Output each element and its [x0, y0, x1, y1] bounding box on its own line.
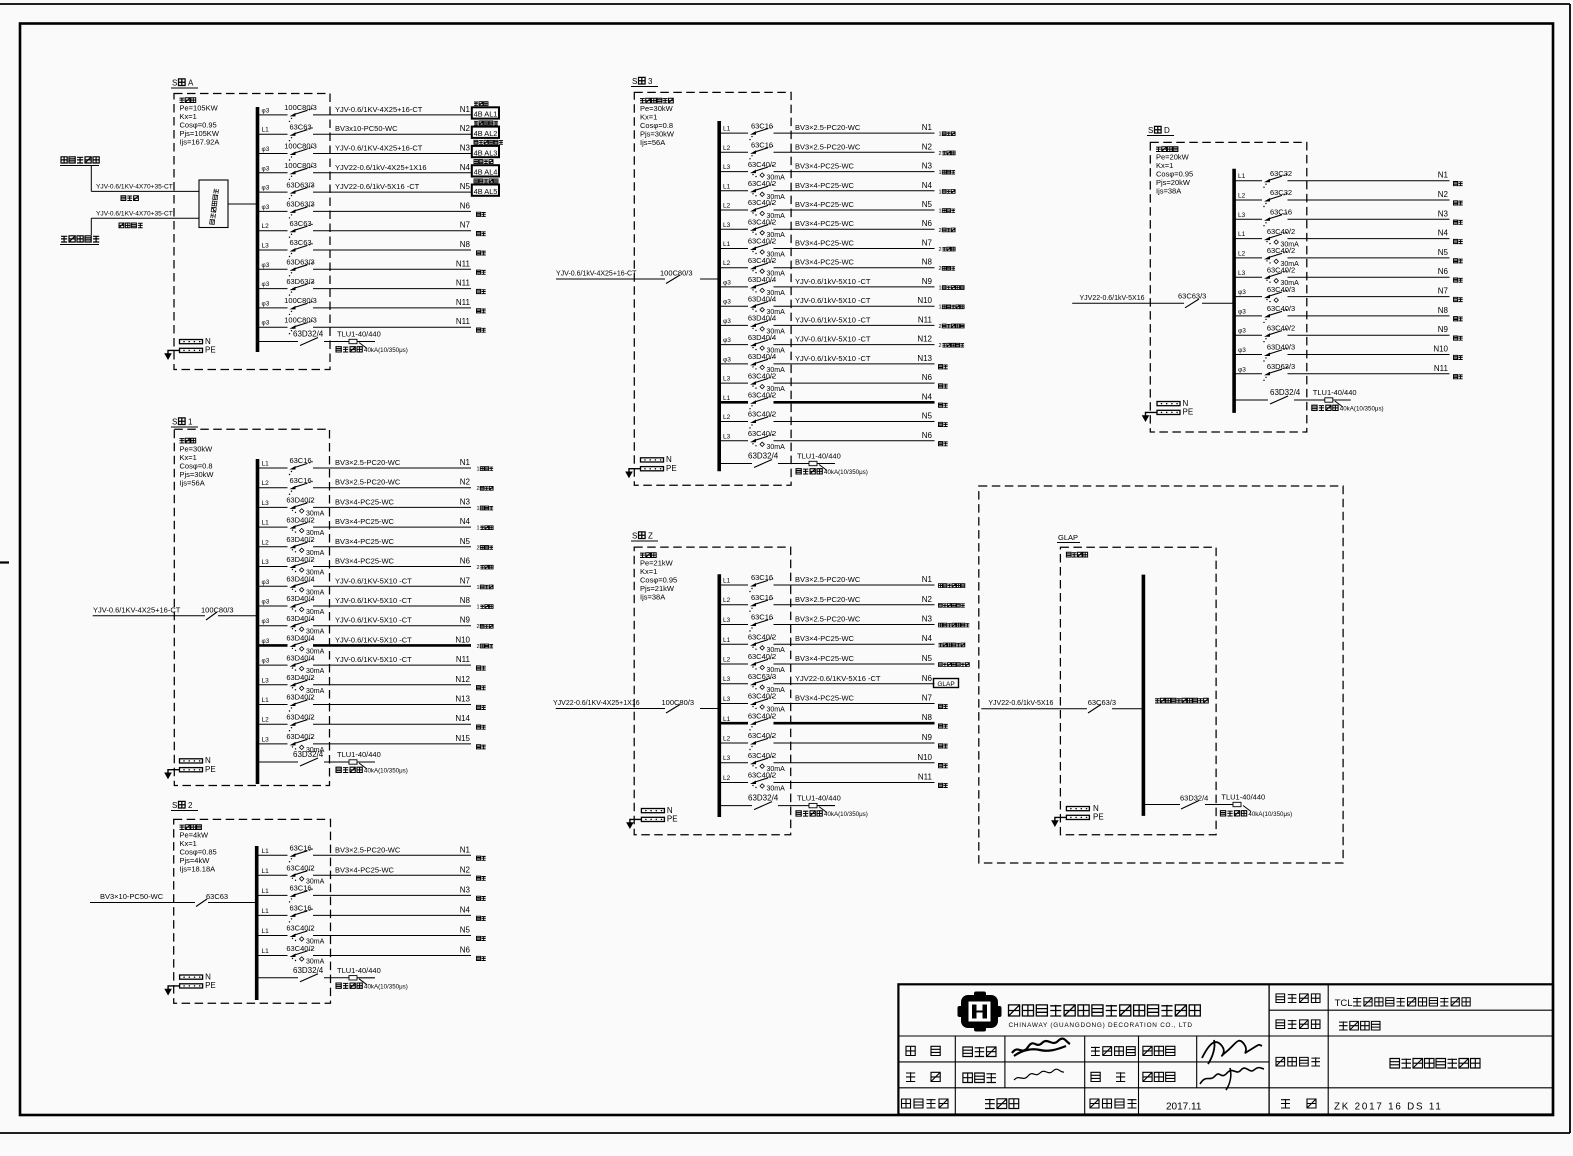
- svg-text:63C40/2: 63C40/2: [748, 731, 776, 740]
- svg-text:L3: L3: [1238, 212, 1246, 219]
- svg-text:PE: PE: [1093, 813, 1104, 822]
- svg-text:N3: N3: [922, 162, 933, 171]
- svg-text:N11: N11: [918, 773, 933, 782]
- svg-text:YJV-0.6/1kV-5X10 -CT: YJV-0.6/1kV-5X10 -CT: [795, 354, 871, 363]
- svg-text:63D40/4: 63D40/4: [748, 352, 776, 361]
- svg-text:Z: Z: [648, 532, 653, 541]
- svg-text:Ijs=167.92A: Ijs=167.92A: [180, 138, 220, 147]
- svg-text:φ3: φ3: [262, 638, 270, 645]
- svg-text:L3: L3: [723, 696, 731, 703]
- svg-text:N12: N12: [455, 675, 470, 684]
- svg-text:N11: N11: [918, 315, 933, 324]
- svg-text:L1: L1: [723, 241, 731, 248]
- svg-text:BV3×4-PC25-WC: BV3×4-PC25-WC: [335, 517, 395, 526]
- svg-text:S: S: [632, 77, 637, 86]
- svg-text:YJV-0.6/1KV-4X70+35-CT: YJV-0.6/1KV-4X70+35-CT: [96, 210, 173, 217]
- svg-text:63C16: 63C16: [751, 593, 773, 602]
- svg-text:63C40/2: 63C40/2: [748, 751, 776, 760]
- svg-text:L2: L2: [723, 775, 731, 782]
- svg-text:φ3: φ3: [1238, 366, 1246, 373]
- svg-text:N6: N6: [922, 674, 933, 683]
- svg-text:100C80/3: 100C80/3: [284, 296, 317, 305]
- svg-text:PE: PE: [667, 815, 678, 824]
- svg-text:63C40/2: 63C40/2: [286, 924, 314, 933]
- svg-text:63C40/2: 63C40/2: [748, 771, 776, 780]
- svg-text:4B AL1: 4B AL1: [474, 110, 498, 119]
- svg-text:2: 2: [939, 343, 942, 349]
- svg-text:N2: N2: [460, 865, 471, 874]
- svg-text:BV3×10-PC50-WC: BV3×10-PC50-WC: [100, 892, 164, 901]
- svg-text:YJV-0.6/1kV-5X10 -CT: YJV-0.6/1kV-5X10 -CT: [795, 315, 871, 324]
- svg-text:N10: N10: [1433, 345, 1448, 354]
- svg-text:TLU1-40/440: TLU1-40/440: [797, 452, 841, 461]
- svg-text:N3: N3: [460, 144, 471, 153]
- svg-text:40kA(10/350μs): 40kA(10/350μs): [824, 469, 868, 476]
- svg-text:N4: N4: [460, 517, 471, 526]
- svg-text:S: S: [172, 801, 177, 810]
- svg-text:N3: N3: [460, 497, 471, 506]
- svg-text:L3: L3: [262, 677, 270, 684]
- svg-text:1: 1: [477, 467, 480, 473]
- svg-text:2: 2: [939, 228, 942, 234]
- svg-text:63C16: 63C16: [289, 456, 311, 465]
- svg-text:φ3: φ3: [723, 337, 731, 344]
- svg-text:N1: N1: [922, 123, 933, 132]
- svg-text:L3: L3: [723, 433, 731, 440]
- svg-text:BV3×2.5-PC20-WC: BV3×2.5-PC20-WC: [335, 478, 401, 487]
- svg-text:63C40/2: 63C40/2: [748, 391, 776, 400]
- svg-text:63D40/2: 63D40/2: [286, 535, 314, 544]
- svg-text:N1: N1: [922, 575, 933, 584]
- svg-text:2: 2: [939, 324, 942, 330]
- svg-text:63C40/2: 63C40/2: [748, 160, 776, 169]
- svg-text:100C80/3: 100C80/3: [284, 142, 317, 151]
- svg-text:63D40/2: 63D40/2: [286, 693, 314, 702]
- svg-text:L3: L3: [262, 559, 270, 566]
- svg-text:YJV-0.6/1kV-4X25+16-CT: YJV-0.6/1kV-4X25+16-CT: [556, 271, 637, 278]
- svg-text:L3: L3: [1238, 270, 1246, 277]
- svg-text:N7: N7: [460, 221, 471, 230]
- svg-text:63C63/3: 63C63/3: [1088, 698, 1116, 707]
- svg-text:S: S: [632, 532, 637, 541]
- svg-text:L3: L3: [723, 676, 731, 683]
- svg-text:40kA(10/350μs): 40kA(10/350μs): [364, 983, 408, 990]
- svg-text:BV3×4-PC25-WC: BV3×4-PC25-WC: [335, 497, 395, 506]
- svg-text:N: N: [667, 806, 673, 815]
- svg-text:L3: L3: [262, 500, 270, 507]
- svg-text:63D32/4: 63D32/4: [748, 794, 779, 803]
- svg-text:φ3: φ3: [262, 204, 270, 211]
- svg-text:N: N: [205, 337, 211, 346]
- svg-text:BV3×4-PC25-WC: BV3×4-PC25-WC: [795, 162, 855, 171]
- svg-text:N4: N4: [1438, 229, 1449, 238]
- svg-text:2: 2: [939, 151, 942, 157]
- svg-text:63D40/4: 63D40/4: [748, 294, 776, 303]
- svg-text:2: 2: [188, 801, 193, 810]
- svg-text:63C16: 63C16: [751, 121, 773, 130]
- svg-text:N: N: [666, 455, 672, 464]
- svg-text:PE: PE: [666, 464, 677, 473]
- svg-text:YJV22-0.6/1KV-5X16 -CT: YJV22-0.6/1KV-5X16 -CT: [795, 674, 881, 683]
- svg-text:63D32/4: 63D32/4: [748, 452, 779, 461]
- svg-text:N14: N14: [455, 714, 470, 723]
- svg-text:N1: N1: [460, 845, 471, 854]
- svg-text:4B AL2: 4B AL2: [474, 129, 498, 138]
- svg-text:N9: N9: [460, 616, 471, 625]
- svg-text:BV3x10-PC50-WC: BV3x10-PC50-WC: [335, 124, 398, 133]
- svg-text:63D40/2: 63D40/2: [286, 515, 314, 524]
- svg-text:YJV22-0.6/1kV-4X25+1X16: YJV22-0.6/1kV-4X25+1X16: [335, 163, 427, 172]
- svg-text:φ3: φ3: [262, 579, 270, 586]
- svg-text:TCL: TCL: [1335, 998, 1353, 1009]
- svg-text:BV3×2.5-PC20-WC: BV3×2.5-PC20-WC: [795, 142, 861, 151]
- svg-text:63D32/4: 63D32/4: [293, 750, 324, 759]
- svg-text:φ3: φ3: [1238, 289, 1246, 296]
- svg-text:N1: N1: [460, 105, 471, 114]
- svg-text:L1: L1: [723, 716, 731, 723]
- svg-text:YJV-0.6/1KV-4X25+16-CT: YJV-0.6/1KV-4X25+16-CT: [93, 606, 181, 615]
- svg-text:L2: L2: [723, 597, 731, 604]
- svg-text:63C16: 63C16: [289, 476, 311, 485]
- svg-text:L2: L2: [262, 480, 270, 487]
- svg-text:YJV-0.6/1kV-5X10 -CT: YJV-0.6/1kV-5X10 -CT: [795, 335, 871, 344]
- svg-text:4B AL4: 4B AL4: [474, 168, 498, 177]
- svg-text:N8: N8: [922, 258, 933, 267]
- svg-text:N4: N4: [460, 163, 471, 172]
- svg-text:N8: N8: [1438, 306, 1449, 315]
- svg-text:63C40/2: 63C40/2: [286, 864, 314, 873]
- svg-text:BV3×4-PC25-WC: BV3×4-PC25-WC: [335, 537, 395, 546]
- svg-text:PE: PE: [1183, 408, 1194, 417]
- svg-text:100C80/3: 100C80/3: [284, 315, 317, 324]
- svg-text:63C16: 63C16: [751, 141, 773, 150]
- svg-text:63D40/2: 63D40/2: [286, 712, 314, 721]
- svg-text:1: 1: [477, 506, 480, 512]
- svg-text:N10: N10: [455, 635, 470, 644]
- svg-text:2: 2: [477, 565, 480, 571]
- svg-text:63C16: 63C16: [289, 884, 311, 893]
- svg-text:YJV22-0.6/1kV-5X16: YJV22-0.6/1kV-5X16: [988, 700, 1053, 707]
- svg-text:N4: N4: [922, 392, 933, 401]
- svg-text:BV3×4-PC25-WC: BV3×4-PC25-WC: [795, 219, 855, 228]
- svg-text:L1: L1: [1238, 231, 1246, 238]
- svg-text:BV3×2.5-PC20-WC: BV3×2.5-PC20-WC: [795, 615, 861, 624]
- svg-text:63D40/4: 63D40/4: [286, 614, 314, 623]
- svg-text:YJV-0.6/1kV-5X10 -CT: YJV-0.6/1kV-5X10 -CT: [795, 277, 871, 286]
- svg-text:BV3×2.5-PC20-WC: BV3×2.5-PC20-WC: [795, 123, 861, 132]
- svg-text:L3: L3: [723, 617, 731, 624]
- svg-text:L3: L3: [723, 222, 731, 229]
- svg-text:L2: L2: [1238, 193, 1246, 200]
- svg-text:1: 1: [939, 305, 942, 311]
- svg-text:Ijs=56A: Ijs=56A: [640, 138, 665, 147]
- svg-text:4B AL3: 4B AL3: [474, 148, 498, 157]
- svg-text:YJV-0.6/1KV-5X10 -CT: YJV-0.6/1KV-5X10 -CT: [335, 635, 412, 644]
- svg-text:YJV-0.6/1KV-4X70+35-CT: YJV-0.6/1KV-4X70+35-CT: [96, 184, 173, 191]
- svg-text:63C63/3: 63C63/3: [748, 672, 776, 681]
- svg-text:L2: L2: [723, 145, 731, 152]
- svg-text:40kA(10/350μs): 40kA(10/350μs): [1340, 406, 1384, 413]
- svg-text:N15: N15: [455, 734, 470, 743]
- svg-text:N2: N2: [460, 124, 471, 133]
- svg-text:63D32/4: 63D32/4: [293, 966, 324, 975]
- svg-text:N11: N11: [456, 259, 471, 268]
- svg-text:N4: N4: [922, 181, 933, 190]
- svg-text:N2: N2: [1438, 190, 1449, 199]
- svg-text:N: N: [1093, 804, 1099, 813]
- svg-text:N5: N5: [1438, 248, 1449, 257]
- svg-text:φ3: φ3: [723, 299, 731, 306]
- svg-text:φ3: φ3: [1238, 308, 1246, 315]
- svg-text:40kA(10/350μs): 40kA(10/350μs): [1248, 811, 1292, 818]
- svg-text:φ3: φ3: [262, 146, 270, 153]
- svg-text:N8: N8: [922, 713, 933, 722]
- svg-text:2: 2: [477, 644, 480, 650]
- svg-text:L2: L2: [723, 736, 731, 743]
- svg-text:N7: N7: [1438, 287, 1449, 296]
- svg-text:63D32/4: 63D32/4: [293, 330, 324, 339]
- svg-text:1: 1: [477, 585, 480, 591]
- svg-text:L1: L1: [262, 908, 270, 915]
- svg-text:63D40/2: 63D40/2: [286, 673, 314, 682]
- svg-text:φ3: φ3: [262, 107, 270, 114]
- svg-text:YJV-0.6/1kV-5X10 -CT: YJV-0.6/1kV-5X10 -CT: [795, 296, 871, 305]
- svg-text:63C40/2: 63C40/2: [748, 217, 776, 226]
- svg-text:L1: L1: [1238, 173, 1246, 180]
- svg-text:L1: L1: [723, 395, 731, 402]
- svg-text:63C40/2: 63C40/2: [748, 237, 776, 246]
- svg-text:1: 1: [477, 605, 480, 611]
- svg-text:63D40/4: 63D40/4: [286, 594, 314, 603]
- svg-text:N13: N13: [917, 354, 932, 363]
- svg-text:4B AL5: 4B AL5: [474, 187, 498, 196]
- svg-text:63D40/4: 63D40/4: [748, 314, 776, 323]
- svg-text:N: N: [205, 756, 211, 765]
- svg-text:BV3×4-PC25-WC: BV3×4-PC25-WC: [795, 200, 855, 209]
- svg-text:2: 2: [477, 545, 480, 551]
- svg-text:N11: N11: [456, 298, 471, 307]
- svg-text:A: A: [188, 79, 194, 88]
- svg-text:N1: N1: [1438, 171, 1449, 180]
- svg-text:N11: N11: [456, 655, 471, 664]
- svg-text:30mA: 30mA: [306, 959, 325, 966]
- svg-text:N3: N3: [1438, 209, 1449, 218]
- svg-text:L1: L1: [262, 848, 270, 855]
- svg-text:PE: PE: [205, 346, 216, 355]
- svg-text:φ3: φ3: [262, 618, 270, 625]
- svg-text:BV3×2.5-PC20-WC: BV3×2.5-PC20-WC: [795, 595, 861, 604]
- svg-text:φ3: φ3: [262, 262, 270, 269]
- svg-text:N6: N6: [460, 557, 471, 566]
- svg-text:1: 1: [477, 526, 480, 532]
- svg-text:Ijs=38A: Ijs=38A: [1156, 187, 1181, 196]
- svg-text:BV3×4-PC25-WC: BV3×4-PC25-WC: [335, 865, 395, 874]
- svg-text:1: 1: [939, 170, 942, 176]
- svg-text:BV3×4-PC25-WC: BV3×4-PC25-WC: [795, 634, 855, 643]
- svg-text:S: S: [1148, 126, 1153, 135]
- svg-text:63D40/2: 63D40/2: [286, 496, 314, 505]
- svg-text:YJV22-0.6/1KV-4X25+1X16: YJV22-0.6/1KV-4X25+1X16: [553, 700, 640, 707]
- svg-text:N6: N6: [922, 431, 933, 440]
- svg-text:BV3×4-PC25-WC: BV3×4-PC25-WC: [795, 654, 855, 663]
- svg-text:L3: L3: [723, 164, 731, 171]
- svg-text:63D40/2: 63D40/2: [286, 732, 314, 741]
- svg-text:L1: L1: [723, 126, 731, 133]
- svg-text:L2: L2: [723, 203, 731, 210]
- svg-text:BV3×2.5-PC20-WC: BV3×2.5-PC20-WC: [335, 845, 401, 854]
- svg-text:N4: N4: [460, 905, 471, 914]
- svg-text:L3: L3: [262, 243, 270, 250]
- svg-text:63C16: 63C16: [751, 613, 773, 622]
- svg-text:N9: N9: [1438, 325, 1449, 334]
- svg-text:L1: L1: [262, 461, 270, 468]
- svg-text:φ3: φ3: [723, 356, 731, 363]
- svg-text:φ3: φ3: [262, 165, 270, 172]
- svg-text:S: S: [172, 418, 177, 427]
- svg-text:YJV22-0.6/1kV-5X16: YJV22-0.6/1kV-5X16: [1080, 295, 1145, 302]
- svg-text:2: 2: [939, 266, 942, 272]
- svg-text:L2: L2: [262, 539, 270, 546]
- svg-text:YJV-0.6/1KV-5X10 -CT: YJV-0.6/1KV-5X10 -CT: [335, 655, 412, 664]
- svg-text:L1: L1: [723, 183, 731, 190]
- svg-text:N10: N10: [917, 753, 932, 762]
- svg-text:N7: N7: [460, 576, 471, 585]
- svg-text:63D40/4: 63D40/4: [286, 634, 314, 643]
- svg-text:S: S: [172, 79, 177, 88]
- svg-text:BV3×2.5-PC20-WC: BV3×2.5-PC20-WC: [795, 575, 861, 584]
- svg-text:YJV-0.6/1KV-5X10 -CT: YJV-0.6/1KV-5X10 -CT: [335, 596, 412, 605]
- svg-text:40kA(10/350μs): 40kA(10/350μs): [364, 768, 408, 775]
- svg-text:2: 2: [939, 247, 942, 253]
- svg-text:63C40/2: 63C40/2: [748, 633, 776, 642]
- svg-text:YJV-0.6/1KV-5X10 -CT: YJV-0.6/1KV-5X10 -CT: [335, 616, 412, 625]
- svg-text:TLU1-40/440: TLU1-40/440: [1221, 793, 1265, 802]
- svg-text:63C40/2: 63C40/2: [748, 712, 776, 721]
- svg-text:L1: L1: [262, 928, 270, 935]
- svg-text:63D32/4: 63D32/4: [1270, 388, 1301, 397]
- svg-text:63C40/2: 63C40/2: [748, 256, 776, 265]
- svg-text:63C40/2: 63C40/2: [748, 371, 776, 380]
- svg-text:100C80/3: 100C80/3: [660, 269, 693, 278]
- svg-text:N6: N6: [460, 201, 471, 210]
- svg-text:N5: N5: [460, 926, 471, 935]
- svg-text:D: D: [1164, 126, 1170, 135]
- svg-text:CHINAWAY (GUANGDONG) DECORAT: CHINAWAY (GUANGDONG) DECORATION CO., LTD: [1009, 1022, 1193, 1029]
- svg-text:L1: L1: [262, 127, 270, 134]
- svg-text:N: N: [1183, 399, 1189, 408]
- svg-text:N10: N10: [917, 296, 932, 305]
- svg-text:TLU1-40/440: TLU1-40/440: [337, 750, 381, 759]
- svg-text:63D63/3: 63D63/3: [286, 277, 314, 286]
- svg-text:BV3×4-PC25-WC: BV3×4-PC25-WC: [795, 694, 855, 703]
- svg-text:L1: L1: [723, 637, 731, 644]
- svg-text:BV3×4-PC25-WC: BV3×4-PC25-WC: [795, 239, 855, 248]
- svg-text:N6: N6: [460, 946, 471, 955]
- svg-text:L3: L3: [723, 376, 731, 383]
- svg-text:2: 2: [477, 624, 480, 630]
- svg-text:N13: N13: [455, 695, 470, 704]
- svg-text:φ3: φ3: [1238, 347, 1246, 354]
- svg-text:L2: L2: [262, 223, 270, 230]
- svg-text:TLU1-40/440: TLU1-40/440: [337, 330, 381, 339]
- svg-text:63C63: 63C63: [289, 219, 311, 228]
- svg-text:63C63/3: 63C63/3: [1178, 292, 1206, 301]
- svg-text:63D40/4: 63D40/4: [286, 575, 314, 584]
- svg-text:φ3: φ3: [262, 658, 270, 665]
- svg-text:φ3: φ3: [1238, 328, 1246, 335]
- svg-text:63D40/4: 63D40/4: [748, 275, 776, 284]
- svg-text:N7: N7: [922, 239, 933, 248]
- svg-text:L2: L2: [723, 414, 731, 421]
- svg-text:YJV-0.6/1KV-5X10 -CT: YJV-0.6/1KV-5X10 -CT: [335, 576, 412, 585]
- svg-text:φ3: φ3: [262, 281, 270, 288]
- svg-text:N9: N9: [922, 277, 933, 286]
- svg-text:N2: N2: [922, 595, 933, 604]
- svg-text:φ3: φ3: [723, 279, 731, 286]
- svg-text:φ3: φ3: [262, 320, 270, 327]
- svg-text:ZK 2017 16 DS 11: ZK 2017 16 DS 11: [1334, 1102, 1443, 1113]
- svg-text:YJV-0.6/1KV-4X25+16-CT: YJV-0.6/1KV-4X25+16-CT: [335, 105, 423, 114]
- svg-text:63C16: 63C16: [289, 844, 311, 853]
- svg-text:GLAP: GLAP: [937, 681, 954, 688]
- svg-text:N6: N6: [922, 219, 933, 228]
- svg-text:TLU1-40/440: TLU1-40/440: [797, 794, 841, 803]
- svg-text:Ijs=38A: Ijs=38A: [640, 593, 665, 602]
- svg-text:TLU1-40/440: TLU1-40/440: [337, 966, 381, 975]
- svg-text:N11: N11: [456, 279, 471, 288]
- svg-text:N6: N6: [1438, 267, 1449, 276]
- svg-text:φ3: φ3: [723, 318, 731, 325]
- svg-text:BV3×4-PC25-WC: BV3×4-PC25-WC: [335, 557, 395, 566]
- svg-text:1: 1: [939, 209, 942, 215]
- svg-text:63C63: 63C63: [289, 122, 311, 131]
- svg-text:63C63: 63C63: [289, 238, 311, 247]
- svg-text:63C16: 63C16: [751, 573, 773, 582]
- svg-text:L1: L1: [262, 697, 270, 704]
- svg-text:L1: L1: [262, 948, 270, 955]
- svg-text:100C80/3: 100C80/3: [284, 103, 317, 112]
- svg-text:1: 1: [188, 418, 193, 427]
- svg-text:N5: N5: [460, 537, 471, 546]
- svg-text:φ3: φ3: [262, 599, 270, 606]
- svg-text:φ3: φ3: [262, 185, 270, 192]
- svg-text:63D40/2: 63D40/2: [286, 555, 314, 564]
- svg-text:63C16: 63C16: [289, 904, 311, 913]
- svg-text:100C80/3: 100C80/3: [201, 606, 234, 615]
- svg-text:N7: N7: [922, 694, 933, 703]
- svg-text:N3: N3: [460, 885, 471, 894]
- svg-text:1: 1: [939, 189, 942, 195]
- svg-text:2017.11: 2017.11: [1166, 1102, 1202, 1113]
- svg-text:N4: N4: [922, 634, 933, 643]
- svg-text:63D63/3: 63D63/3: [286, 200, 314, 209]
- svg-text:N12: N12: [917, 335, 932, 344]
- svg-text:L1: L1: [262, 520, 270, 527]
- svg-text:63D32/4: 63D32/4: [1180, 794, 1208, 803]
- svg-text:100C80/3: 100C80/3: [284, 161, 317, 170]
- svg-text:PE: PE: [205, 981, 216, 990]
- svg-text:L1: L1: [723, 578, 731, 585]
- svg-text:GLAP: GLAP: [1058, 533, 1078, 542]
- svg-text:N9: N9: [922, 733, 933, 742]
- svg-text:L1: L1: [262, 868, 270, 875]
- svg-text:N5: N5: [922, 200, 933, 209]
- svg-text:63C40/2: 63C40/2: [748, 652, 776, 661]
- svg-text:N6: N6: [922, 373, 933, 382]
- svg-text:L2: L2: [723, 657, 731, 664]
- svg-text:YJV22-0.6/1kV-5X16 -CT: YJV22-0.6/1kV-5X16 -CT: [335, 182, 420, 191]
- svg-text:L3: L3: [262, 736, 270, 743]
